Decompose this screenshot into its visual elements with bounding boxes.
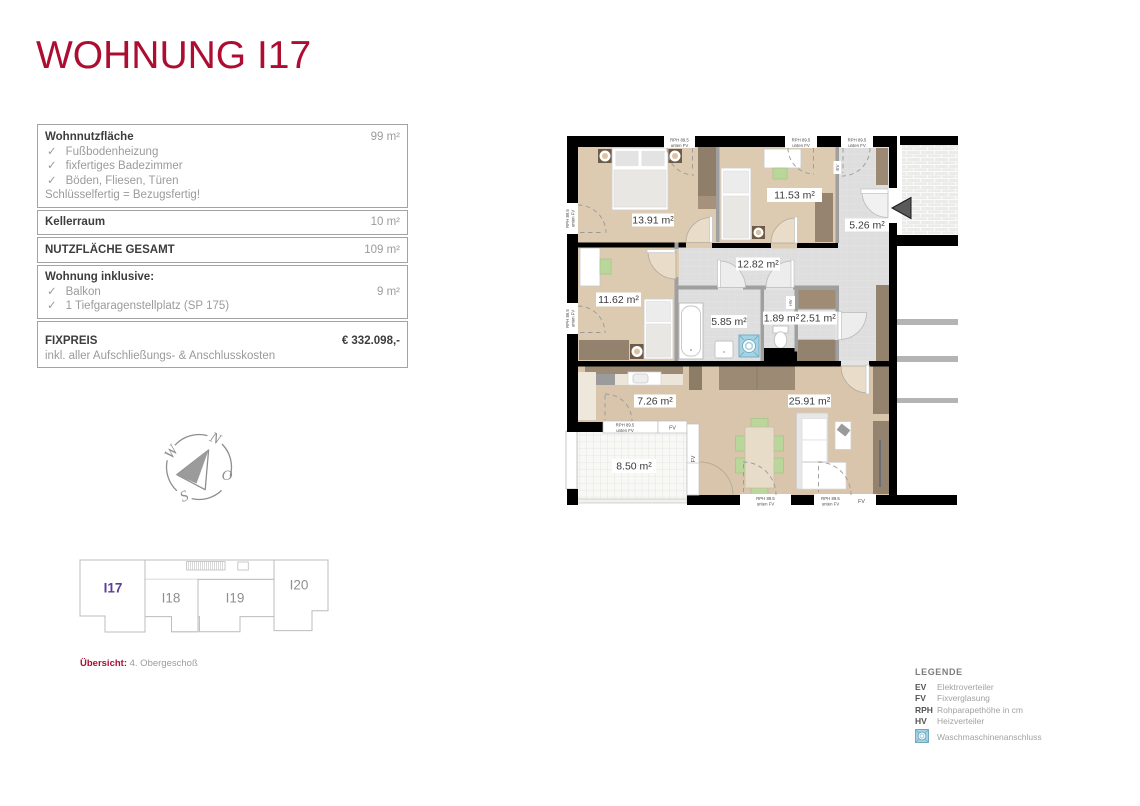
svg-text:FV: FV <box>669 426 676 432</box>
svg-text:1.89 m²: 1.89 m² <box>764 313 800 325</box>
svg-text:I20: I20 <box>290 578 309 593</box>
svg-text:2.51 m²: 2.51 m² <box>800 313 836 325</box>
svg-text:RPH 89.5: RPH 89.5 <box>616 423 635 428</box>
svg-text:I18: I18 <box>162 591 181 606</box>
svg-text:RPH 89.5: RPH 89.5 <box>848 138 867 143</box>
svg-text:RPH 89.5: RPH 89.5 <box>670 138 689 143</box>
svg-text:I17: I17 <box>104 581 123 596</box>
svg-text:O: O <box>222 468 233 484</box>
svg-text:unten FV: unten FV <box>570 310 575 328</box>
svg-text:FV: FV <box>691 455 697 462</box>
svg-text:unten FV: unten FV <box>671 143 689 148</box>
svg-text:FV: FV <box>858 499 865 505</box>
svg-text:12.82 m²: 12.82 m² <box>737 259 779 271</box>
svg-text:RPH 89.5: RPH 89.5 <box>565 309 570 328</box>
svg-text:unten FV: unten FV <box>570 210 575 228</box>
svg-text:25.91 m²: 25.91 m² <box>789 396 831 408</box>
svg-text:5.85 m²: 5.85 m² <box>711 316 747 328</box>
svg-text:EV: EV <box>835 164 840 171</box>
svg-text:RPH 89.5: RPH 89.5 <box>821 496 840 501</box>
svg-text:unten FV: unten FV <box>792 143 810 148</box>
svg-text:W: W <box>162 442 183 463</box>
svg-text:unten FV: unten FV <box>848 143 866 148</box>
svg-text:13.91 m²: 13.91 m² <box>632 215 674 227</box>
svg-text:HV: HV <box>788 298 793 305</box>
svg-text:11.62 m²: 11.62 m² <box>598 294 639 306</box>
svg-text:I19: I19 <box>226 591 245 606</box>
svg-text:RPH 89.5: RPH 89.5 <box>565 209 570 228</box>
svg-text:unten FV: unten FV <box>822 502 840 507</box>
svg-text:unten FV: unten FV <box>757 502 775 507</box>
svg-text:8.50 m²: 8.50 m² <box>616 461 652 473</box>
svg-text:unten FV: unten FV <box>616 428 634 433</box>
svg-text:11.53 m²: 11.53 m² <box>774 190 815 202</box>
svg-text:S: S <box>178 488 192 506</box>
svg-text:N: N <box>206 429 224 449</box>
svg-text:RPH 89.5: RPH 89.5 <box>756 496 775 501</box>
svg-text:5.26 m²: 5.26 m² <box>849 220 885 232</box>
svg-text:RPH 89.5: RPH 89.5 <box>792 138 811 143</box>
svg-text:7.26 m²: 7.26 m² <box>637 396 673 408</box>
